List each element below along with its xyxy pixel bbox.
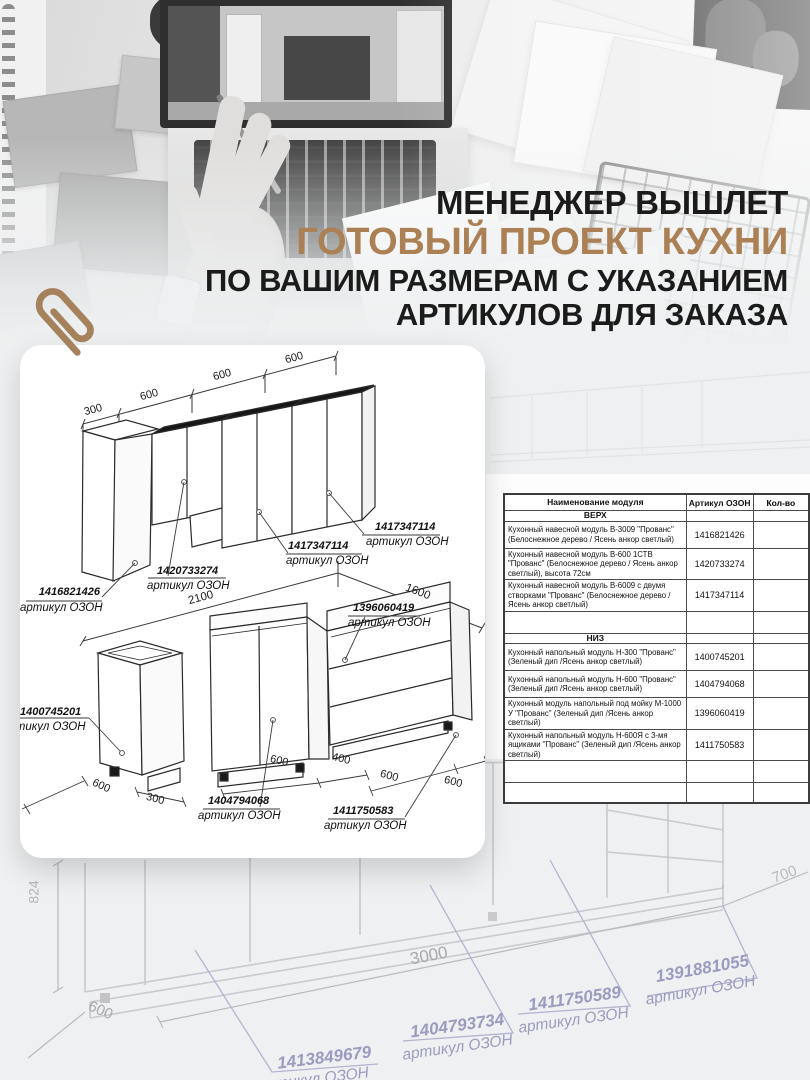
module-article: 1400745201 — [686, 644, 753, 671]
kitchen-project-card: 300 600 600 600 2100 1600 600 300 600 40… — [20, 345, 485, 858]
article-number: 1411750583 — [333, 805, 393, 817]
module-spec-table: Наименование модуля Артикул ОЗОН Кол-во … — [503, 493, 810, 804]
table-row: Кухонный модуль напольный под мойку М-10… — [504, 698, 809, 730]
table-row: Кухонный напольный модуль Н-600 "Прованс… — [504, 671, 809, 698]
headline: МЕНЕДЖЕР ВЫШЛЕТ ГОТОВЫЙ ПРОЕКТ КУХНИ ПО … — [205, 186, 788, 331]
article-caption: артикул ОЗОН — [348, 617, 431, 629]
module-article: 1411750583 — [686, 729, 753, 761]
article-number: 1416821426 — [24, 586, 100, 598]
empty-row — [504, 783, 809, 804]
article-number: 1400745201 — [20, 706, 81, 718]
module-name: Кухонный напольный модуль Н-600 "Прованс… — [504, 671, 686, 698]
empty-row — [504, 611, 809, 633]
table-row: Кухонный навесной модуль В-3009 "Прованс… — [504, 521, 809, 548]
article-caption: артикул ОЗОН — [20, 602, 102, 614]
article-caption: артикул ОЗОН — [324, 820, 407, 832]
table-row: Кухонный напольный модуль Н-300 "Прованс… — [504, 644, 809, 671]
headline-line-4: АРТИКУЛОВ ДЛЯ ЗАКАЗА — [205, 299, 788, 331]
section-title: НИЗ — [504, 633, 686, 644]
article-number: 1420733274 — [157, 565, 218, 577]
module-name: Кухонный навесной модуль В-6009 с двумя … — [504, 580, 686, 612]
module-article: 1396060419 — [686, 698, 753, 730]
empty-row — [504, 761, 809, 783]
module-name: Кухонный напольный модуль Н-600Я с 3-мя … — [504, 729, 686, 761]
col-header-article: Артикул ОЗОН — [686, 494, 753, 511]
article-caption: артикул ОЗОН — [286, 555, 369, 567]
headline-line-2-accent: ГОТОВЫЙ ПРОЕКТ КУХНИ — [205, 223, 788, 262]
article-number: 1417347114 — [288, 540, 348, 552]
module-name: Кухонный навесной модуль В-3009 "Прованс… — [504, 521, 686, 548]
section-row-bottom: НИЗ — [504, 633, 809, 644]
module-name: Кухонный навесной модуль В-600 1СТВ "Про… — [504, 548, 686, 580]
module-article: 1417347114 — [686, 580, 753, 612]
table-header-row: Наименование модуля Артикул ОЗОН Кол-во — [504, 494, 809, 511]
module-name: Кухонный модуль напольный под мойку М-10… — [504, 698, 686, 730]
article-number: 1404794068 — [208, 795, 269, 807]
table-row: Кухонный навесной модуль В-600 1СТВ "Про… — [504, 548, 809, 580]
module-article: 1420733274 — [686, 548, 753, 580]
col-header-name: Наименование модуля — [504, 494, 686, 511]
table-row: Кухонный навесной модуль В-6009 с двумя … — [504, 580, 809, 612]
module-article: 1404794068 — [686, 671, 753, 698]
headline-line-3: ПО ВАШИМ РАЗМЕРАМ С УКАЗАНИЕМ — [205, 265, 788, 297]
section-title: ВЕРХ — [504, 511, 686, 522]
col-header-qty: Кол-во — [753, 494, 809, 511]
article-caption: артикул ОЗОН — [198, 810, 281, 822]
module-article: 1416821426 — [686, 521, 753, 548]
article-caption: артикул ОЗОН — [147, 580, 230, 592]
section-row-top: ВЕРХ — [504, 511, 809, 522]
module-name: Кухонный напольный модуль Н-300 "Прованс… — [504, 644, 686, 671]
article-number: 1396060419 — [353, 602, 414, 614]
promo-poster: 824 600 3000 700 1413849679 артикул ОЗОН… — [0, 0, 810, 1080]
article-caption: артикул ОЗОН — [20, 721, 86, 733]
sketch-dim-height: 824 — [26, 880, 42, 903]
headline-line-1: МЕНЕДЖЕР ВЫШЛЕТ — [205, 186, 788, 220]
table-row: Кухонный напольный модуль Н-600Я с 3-мя … — [504, 729, 809, 761]
article-caption: артикул ОЗОН — [366, 536, 449, 548]
paperclip-icon — [20, 274, 116, 370]
article-number: 1417347114 — [375, 521, 435, 533]
